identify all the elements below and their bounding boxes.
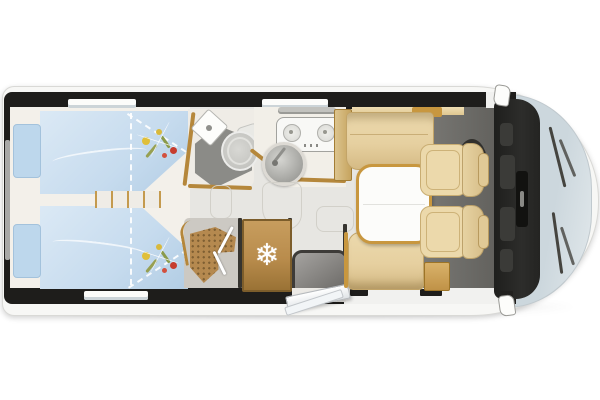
cab-seat-driver bbox=[420, 205, 484, 257]
seat-headrest bbox=[478, 215, 489, 249]
bedspread-flowers-top bbox=[136, 123, 182, 163]
dinette-trim bbox=[344, 232, 348, 288]
side-mirror-bottom bbox=[498, 294, 517, 317]
floor-hatch bbox=[210, 185, 232, 219]
fridge: ❄ bbox=[242, 219, 292, 292]
burner-icon bbox=[317, 124, 335, 142]
dashboard bbox=[494, 99, 540, 299]
floor-hatch bbox=[316, 206, 354, 232]
bedspread-flowers-bottom bbox=[136, 238, 182, 278]
cab-seat-passenger bbox=[420, 143, 484, 195]
center-console bbox=[516, 171, 528, 227]
seat-cushion bbox=[420, 206, 466, 258]
pillow-bottom bbox=[13, 224, 41, 278]
side-cabinet bbox=[424, 262, 450, 291]
snowflake-icon: ❄ bbox=[254, 241, 279, 271]
sink-drain-icon bbox=[206, 125, 212, 131]
window-frame-tab bbox=[350, 289, 368, 296]
burner-icon bbox=[283, 124, 301, 142]
stove-knobs bbox=[304, 144, 318, 147]
motorhome-floorplan: ❄ bbox=[0, 0, 600, 400]
side-mirror-top bbox=[493, 84, 512, 107]
pillow-top bbox=[13, 124, 41, 178]
bed-steps bbox=[95, 191, 161, 208]
window-rear-bottom bbox=[84, 291, 148, 300]
bed-extension-dashed-line bbox=[130, 207, 132, 285]
seat-cushion bbox=[420, 144, 466, 196]
bed-extension-dashed-line bbox=[130, 113, 132, 191]
kitchen-grill bbox=[278, 107, 336, 114]
seat-headrest bbox=[478, 153, 489, 187]
window-rear-top bbox=[68, 99, 136, 108]
faucet-icon bbox=[272, 160, 278, 166]
bench-seam bbox=[350, 134, 428, 135]
